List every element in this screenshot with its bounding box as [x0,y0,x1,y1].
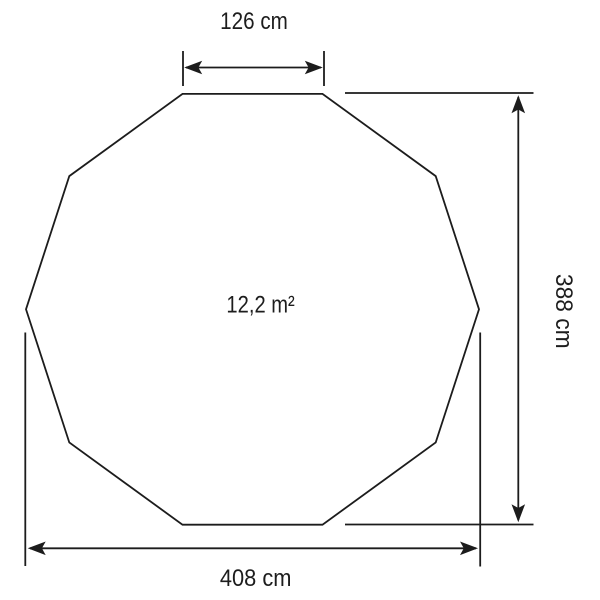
svg-text:408 cm: 408 cm [220,564,292,591]
svg-text:12,2 m²: 12,2 m² [226,291,294,318]
svg-text:126 cm: 126 cm [220,8,288,35]
svg-text:388 cm: 388 cm [551,274,578,349]
